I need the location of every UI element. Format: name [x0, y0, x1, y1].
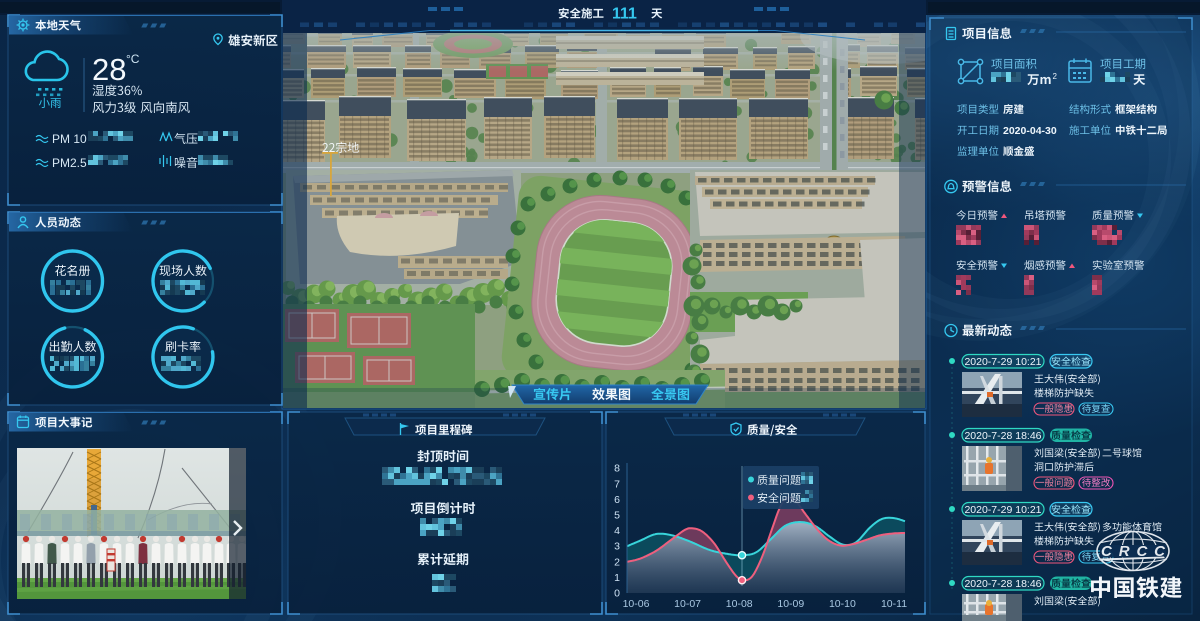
svg-text:PM 10: PM 10 [52, 132, 87, 146]
svg-text:0: 0 [614, 588, 620, 600]
svg-text:10-09: 10-09 [777, 598, 804, 610]
svg-text:10-08: 10-08 [726, 598, 753, 610]
svg-text:10-07: 10-07 [674, 598, 701, 610]
svg-text:7: 7 [614, 478, 620, 490]
svg-text:28: 28 [92, 52, 126, 87]
svg-text:°C: °C [126, 52, 140, 66]
svg-text:2020-7-29 10:21: 2020-7-29 10:21 [964, 504, 1041, 516]
svg-text:2: 2 [614, 556, 620, 568]
svg-text:8: 8 [614, 463, 620, 475]
svg-text:1: 1 [614, 572, 620, 584]
svg-text:4: 4 [614, 525, 620, 537]
svg-text:3: 3 [614, 541, 620, 553]
svg-text:10-11: 10-11 [881, 598, 907, 610]
svg-text:10-06: 10-06 [623, 598, 650, 610]
svg-text:5: 5 [614, 510, 620, 522]
svg-text:PM2.5: PM2.5 [52, 156, 87, 170]
svg-text:2020-7-28 18:46: 2020-7-28 18:46 [964, 430, 1041, 442]
svg-text:6: 6 [614, 494, 620, 506]
svg-text:10-10: 10-10 [829, 598, 856, 610]
svg-text:2020-04-30: 2020-04-30 [1003, 125, 1057, 137]
svg-text:2020-7-29 10:21: 2020-7-29 10:21 [964, 356, 1041, 368]
svg-text:2020-7-28 18:46: 2020-7-28 18:46 [964, 578, 1041, 590]
svg-text:111: 111 [612, 6, 637, 23]
svg-text:2: 2 [1053, 72, 1058, 81]
